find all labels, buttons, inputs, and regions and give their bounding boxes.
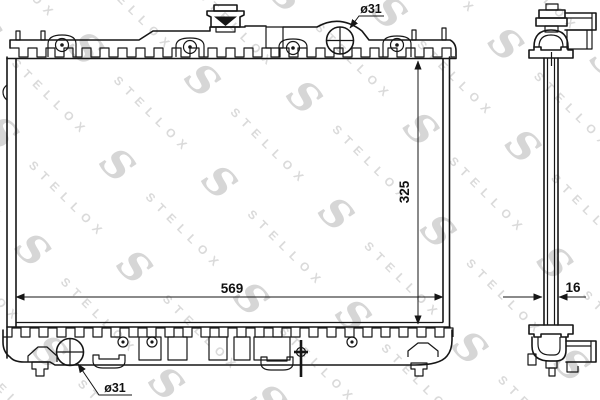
- front-view: 569 325 ø31 ø31: [3, 2, 456, 395]
- side-top-assembly: [529, 4, 596, 66]
- handle-pocket: [261, 357, 293, 370]
- outlet-diameter-label: ø31: [104, 381, 126, 395]
- filler-cap: [207, 5, 244, 32]
- core-height-label: 325: [397, 180, 412, 203]
- mount-pin: [16, 31, 20, 40]
- side-bottom-assembly: [528, 325, 596, 376]
- inlet-diameter-label: ø31: [360, 2, 382, 16]
- tent-notch: [28, 347, 57, 362]
- core-width-label: 569: [221, 281, 244, 296]
- thickness-label: 16: [565, 280, 581, 295]
- dimension-inlet: ø31: [350, 2, 384, 28]
- mount-pin: [412, 30, 416, 40]
- side-core-column: [544, 58, 558, 325]
- top-tank: [7, 5, 456, 59]
- dimension-outlet: ø31: [78, 364, 132, 395]
- outlet-port-circle: [56, 338, 84, 366]
- drain-petcock: [294, 340, 308, 377]
- dimension-core-width: 569: [16, 281, 443, 297]
- tank-bracket-block: [266, 27, 283, 48]
- side-inlet-pipe: [565, 13, 596, 30]
- mount-pin: [442, 28, 446, 40]
- dimension-core-height: 325: [397, 61, 418, 324]
- side-view: 16: [503, 4, 596, 376]
- drain-plug: [32, 362, 48, 376]
- radiator-drawing-canvas: SSTELLOXSSTELLOXSSTELLOXSSTELLOXSSTELLOX…: [0, 0, 600, 400]
- radiator-technical-drawing: 569 325 ø31 ø31: [0, 0, 600, 400]
- core: [3, 57, 450, 358]
- bottom-tank: [3, 323, 453, 378]
- mount-brackets: [48, 35, 411, 57]
- handle-pocket: [93, 355, 125, 368]
- inlet-port-circle: [326, 27, 354, 55]
- mount-pin: [41, 31, 45, 40]
- tent-notch: [408, 343, 438, 357]
